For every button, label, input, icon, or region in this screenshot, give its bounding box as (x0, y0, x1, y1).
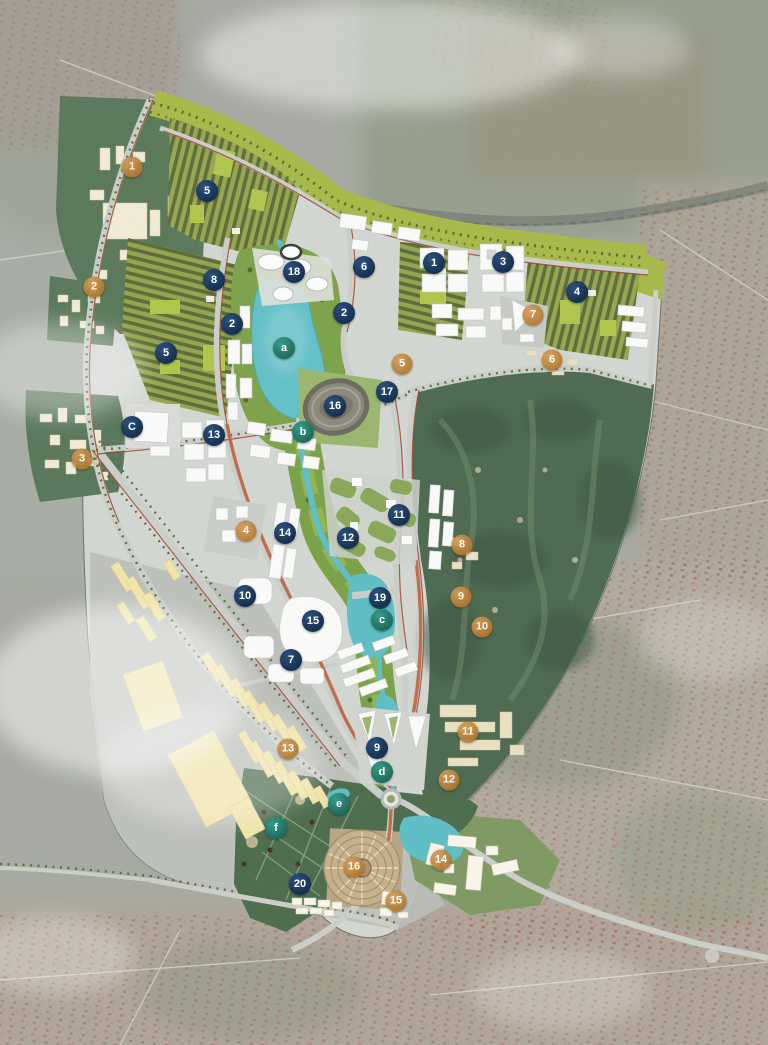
map-marker-teal-a: a (273, 337, 295, 359)
map-marker-navy-3: 3 (492, 251, 514, 273)
map-marker-teal-e: e (328, 793, 350, 815)
map-marker-bronze-6: 6 (542, 350, 563, 371)
map-marker-teal-d: d (371, 761, 393, 783)
map-marker-navy-6: 6 (353, 256, 375, 278)
map-marker-bronze-7: 7 (523, 305, 544, 326)
map-marker-navy-8: 8 (203, 269, 225, 291)
map-marker-bronze-4: 4 (236, 521, 257, 542)
map-marker-navy-16: 16 (324, 395, 346, 417)
map-marker-bronze-2: 2 (84, 277, 105, 298)
map-marker-bronze-1: 1 (122, 157, 143, 178)
map-marker-bronze-10: 10 (472, 617, 493, 638)
satellite-grain (0, 0, 768, 1045)
map-marker-navy-5: 5 (196, 180, 218, 202)
masterplan-map: 1223455678910111213141516171819201234567… (0, 0, 768, 1045)
map-marker-navy-4: 4 (566, 281, 588, 303)
map-marker-navy-20: 20 (289, 873, 311, 895)
map-marker-bronze-16: 16 (344, 857, 365, 878)
map-marker-teal-c: c (371, 609, 393, 631)
map-marker-navy-C: C (121, 416, 143, 438)
map-marker-navy-17: 17 (376, 381, 398, 403)
map-marker-navy-10: 10 (234, 585, 256, 607)
map-marker-navy-2: 2 (221, 313, 243, 335)
map-marker-navy-15: 15 (302, 610, 324, 632)
map-graphic (0, 0, 768, 1045)
map-marker-navy-18: 18 (283, 261, 305, 283)
map-marker-navy-13: 13 (203, 424, 225, 446)
map-marker-teal-f: f (265, 817, 287, 839)
map-marker-bronze-11: 11 (458, 722, 479, 743)
map-marker-navy-12: 12 (337, 527, 359, 549)
map-marker-bronze-15: 15 (386, 891, 407, 912)
map-marker-bronze-5: 5 (392, 354, 413, 375)
map-marker-navy-9: 9 (366, 737, 388, 759)
map-marker-navy-19: 19 (369, 587, 391, 609)
map-marker-bronze-8: 8 (452, 535, 473, 556)
map-marker-teal-b: b (292, 421, 314, 443)
map-marker-bronze-3: 3 (72, 449, 93, 470)
map-marker-bronze-13: 13 (278, 739, 299, 760)
map-marker-navy-5: 5 (155, 342, 177, 364)
map-marker-navy-7: 7 (280, 649, 302, 671)
map-marker-navy-14: 14 (274, 522, 296, 544)
map-marker-navy-11: 11 (388, 504, 410, 526)
map-marker-navy-1: 1 (423, 252, 445, 274)
map-marker-bronze-12: 12 (439, 770, 460, 791)
map-marker-bronze-9: 9 (451, 587, 472, 608)
map-marker-bronze-14: 14 (431, 850, 452, 871)
map-marker-navy-2: 2 (333, 302, 355, 324)
